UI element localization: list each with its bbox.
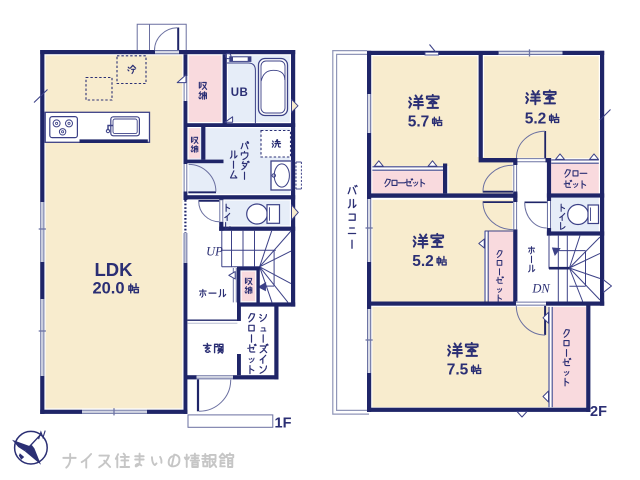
svg-text:7.5: 7.5 xyxy=(447,362,469,379)
svg-text:LDK: LDK xyxy=(94,259,133,280)
svg-text:DN: DN xyxy=(531,282,550,296)
svg-text:5.2: 5.2 xyxy=(412,253,434,270)
svg-text:5.7: 5.7 xyxy=(408,114,430,131)
svg-text:1F: 1F xyxy=(275,416,292,432)
svg-text:2F: 2F xyxy=(590,404,607,420)
svg-text:20.0: 20.0 xyxy=(92,280,124,298)
svg-text:UP: UP xyxy=(206,245,223,259)
svg-text:5.2: 5.2 xyxy=(525,111,547,128)
svg-text:UB: UB xyxy=(231,87,249,99)
